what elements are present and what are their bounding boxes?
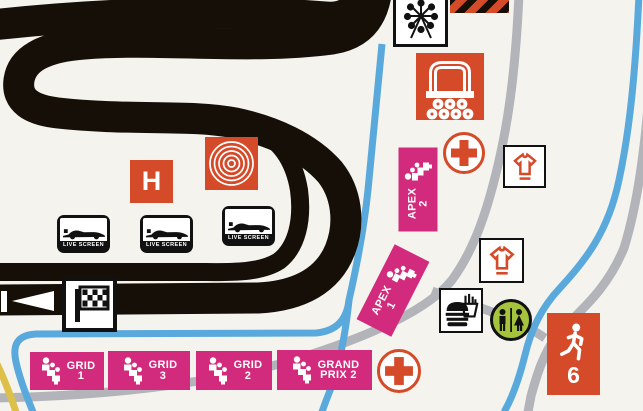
toilets-icon — [493, 302, 529, 338]
merchandise-marker-south — [479, 238, 524, 283]
helipad-marker: H — [130, 160, 173, 203]
first-aid-cross-icon — [450, 139, 478, 167]
live-screen-label: LIVE SCREEN — [60, 241, 107, 250]
gate-number: 6 — [567, 364, 580, 387]
live-screen-icon — [225, 209, 272, 234]
toilets-marker — [490, 299, 532, 341]
grandstand-grid-3: GRID3 — [108, 351, 190, 390]
live-screen-icon — [60, 218, 107, 241]
checkered-flag-icon — [66, 281, 113, 328]
live-screen-icon — [143, 218, 190, 241]
stand-label: APEX1 — [370, 284, 403, 321]
grandstand-grid-2: GRID2 — [196, 351, 272, 390]
ferris-wheel-marker — [393, 0, 448, 47]
grandstand-seats-icon — [206, 357, 230, 385]
ferris-wheel-icon — [399, 0, 443, 42]
start-line-tick — [1, 291, 7, 312]
first-aid-cross-icon — [384, 356, 414, 386]
grandstand-seats-icon — [39, 357, 63, 385]
tshirt-icon — [484, 243, 520, 279]
hazard-stripe-barrier — [450, 0, 509, 13]
spiral-marker — [205, 137, 258, 190]
start-finish-marker — [62, 277, 117, 332]
circuit-map: APEX2 APEX1 GRID1 GRID3 — [0, 0, 643, 411]
merchandise-marker-north — [503, 145, 546, 188]
first-aid-marker-south — [377, 349, 421, 393]
spiral-marker-icon — [205, 137, 258, 190]
live-screen-label: LIVE SCREEN — [143, 241, 190, 250]
stand-label: GRID3 — [149, 360, 178, 381]
grandstand-grand-prix-2: GRANDPRIX 2 — [277, 350, 372, 390]
gate-6-marker: 6 — [547, 313, 600, 395]
tshirt-icon — [508, 150, 542, 184]
live-screen-marker-1: LIVE SCREEN — [57, 215, 110, 253]
covered-grandstand-icon — [416, 53, 484, 120]
helipad-label: H — [142, 166, 162, 197]
grandstand-seats-icon — [121, 357, 145, 385]
grandstand-seats-icon — [290, 356, 314, 384]
path-yellow — [0, 362, 16, 411]
race-track-loop — [0, 0, 377, 300]
burger-fries-icon — [443, 293, 479, 329]
grandstand-apex-2: APEX2 — [398, 147, 437, 231]
stand-label: APEX2 — [407, 187, 428, 218]
live-screen-label: LIVE SCREEN — [225, 234, 272, 243]
covered-grandstand-marker — [416, 53, 484, 120]
live-screen-marker-3: LIVE SCREEN — [222, 206, 275, 246]
race-track-top — [0, 0, 361, 25]
grandstand-seats-icon — [404, 159, 432, 183]
walking-person-icon — [557, 322, 591, 362]
stand-label: GRID1 — [67, 361, 96, 382]
stand-label: GRANDPRIX 2 — [318, 360, 360, 381]
live-screen-marker-2: LIVE SCREEN — [140, 215, 193, 253]
food-marker — [439, 288, 483, 333]
stand-label: GRID2 — [234, 360, 263, 381]
grandstand-grid-1: GRID1 — [30, 352, 104, 390]
first-aid-marker-north — [443, 132, 485, 174]
